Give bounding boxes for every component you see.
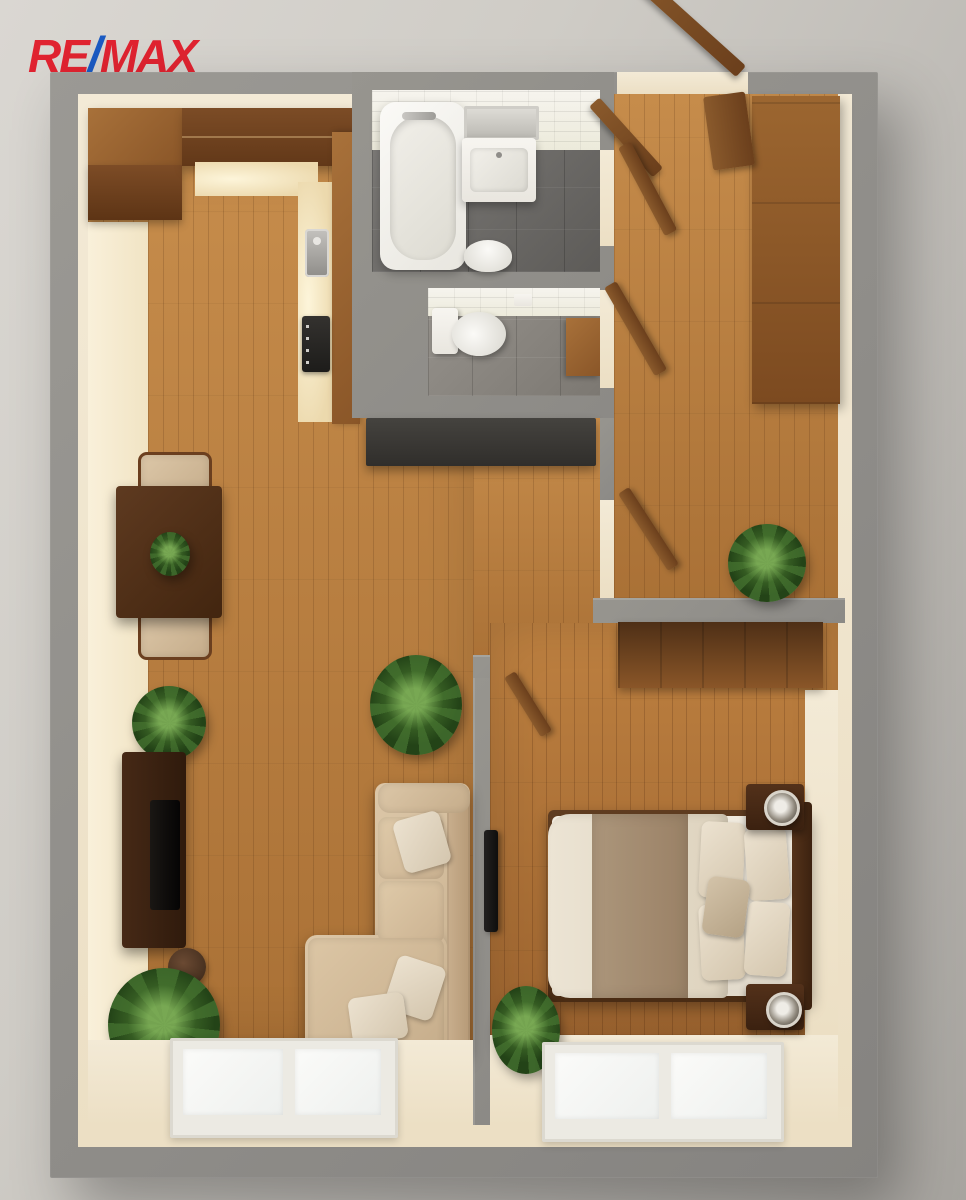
sofa-pillow [347, 991, 409, 1044]
bed-pillow [743, 901, 790, 978]
bedroom-window [542, 1042, 784, 1142]
bed-pillow [744, 827, 791, 902]
kitchen-cabinet-seam [182, 136, 352, 138]
window-pane [183, 1049, 283, 1115]
kitchen-faucet-icon [313, 237, 321, 245]
window-pane [295, 1049, 381, 1115]
bathroom-mirror [464, 106, 539, 140]
stove-knobs-icon [306, 324, 309, 364]
kitchen-countertop-vertical [298, 182, 332, 422]
window-pane [555, 1053, 659, 1119]
hall-bedroom-wall [593, 598, 845, 623]
sofa-seat-cushion [378, 881, 444, 943]
wc-cabinet [566, 318, 600, 376]
apartment-plan [50, 72, 878, 1178]
kitchen-corner-cabinet-front [88, 165, 182, 220]
sofa-armrest [378, 783, 470, 813]
living-tv [150, 800, 180, 910]
bed-headboard [792, 802, 812, 1010]
wc-toilet-bowl [452, 312, 506, 356]
bathtub-faucet-icon [402, 112, 436, 120]
bathtub-basin [390, 116, 456, 260]
hall-wardrobe [752, 96, 840, 404]
hallway-plant [728, 524, 806, 602]
vanity-faucet-icon [496, 152, 502, 158]
hall-living-door-opening [600, 500, 614, 598]
wc-door-opening [600, 290, 614, 388]
bedroom-tv [484, 830, 498, 932]
bed-accent-pillow [701, 875, 751, 938]
living-room-window [170, 1038, 398, 1138]
sofa-backrest [447, 788, 470, 1050]
nightstand-lamp [766, 992, 802, 1028]
window-pane [671, 1053, 767, 1119]
floor-plan-render: RE/MAX [0, 0, 966, 1200]
entry-door-opening [617, 72, 748, 94]
dining-table-plant [150, 532, 190, 576]
bathroom-toilet [464, 240, 512, 272]
bathroom-door-opening [600, 150, 614, 246]
kitchen-corner-cabinet-top [88, 108, 182, 165]
bedroom-wardrobe [618, 622, 823, 688]
living-center-plant [370, 655, 462, 755]
hall-living-wall [600, 418, 614, 500]
nightstand-lamp [764, 790, 800, 826]
toilet-paper-holder-icon [514, 294, 532, 306]
sideboard-desk [366, 418, 596, 466]
bed-runner-blanket [592, 814, 688, 998]
living-plant [132, 686, 206, 760]
entry-door-leaf [617, 0, 746, 77]
